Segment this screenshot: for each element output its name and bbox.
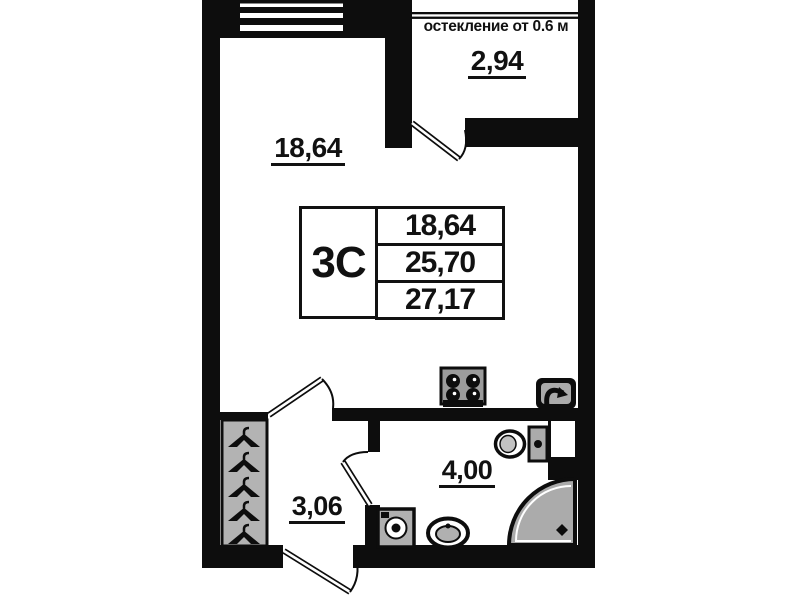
floor-plan: остекление от 0.6 м 2,94 18,64 3,06 4,00… [0,0,799,600]
bathroom-top-wall [332,408,578,421]
balcony-area-label: 2,94 [437,46,557,79]
bathroom-area-label: 4,00 [407,456,527,488]
living-area-label: 18,64 [248,133,368,166]
entrance-door-icon [284,551,358,592]
hallway-area-label: 3,06 [257,492,377,524]
room-hallway [267,420,365,545]
glazing-note: остекление от 0.6 м [412,19,580,35]
window-icon [240,0,343,38]
left-wall [202,0,220,566]
apartment-spec-table: 3С 18,64 25,70 27,17 [299,206,505,320]
right-wall [578,0,595,566]
bathroom-wall-stub [368,421,380,452]
bottom-wall-left [202,545,283,568]
spec-row-living-area: 18,64 [375,206,505,246]
wardrobe-icon [222,420,267,546]
corner-wall [220,0,240,38]
apartment-type: 3С [299,206,378,319]
spec-row-total-area: 25,70 [375,243,505,283]
spec-row-overall-area: 27,17 [375,280,505,320]
